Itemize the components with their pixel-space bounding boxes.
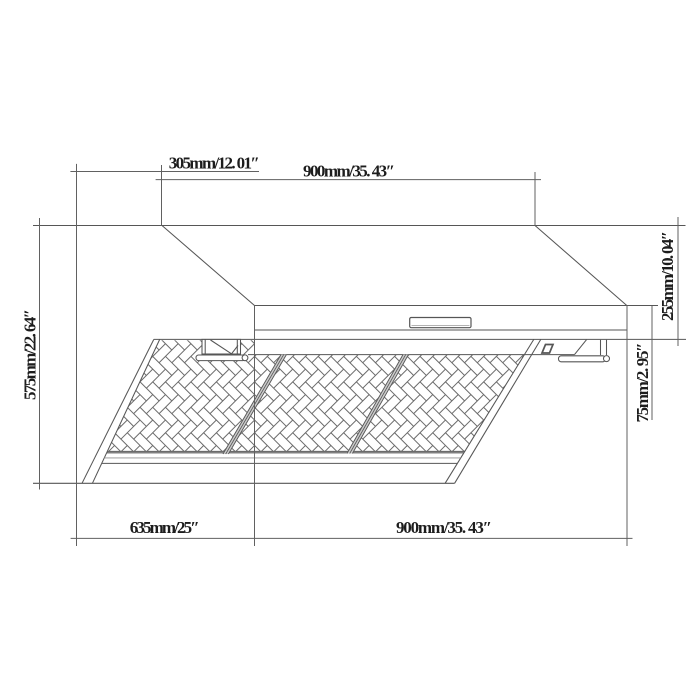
svg-text:305mm/12. 01″: 305mm/12. 01″: [169, 154, 260, 173]
svg-text:900mm/35. 43″: 900mm/35. 43″: [396, 518, 492, 537]
svg-text:575mm/22. 64″: 575mm/22. 64″: [21, 309, 40, 400]
svg-text:75mm/2. 95″: 75mm/2. 95″: [633, 343, 652, 423]
svg-text:900mm/35. 43″: 900mm/35. 43″: [303, 162, 395, 181]
svg-text:255mm/10. 04″: 255mm/10. 04″: [658, 231, 677, 321]
svg-text:635mm/25″: 635mm/25″: [130, 518, 200, 537]
